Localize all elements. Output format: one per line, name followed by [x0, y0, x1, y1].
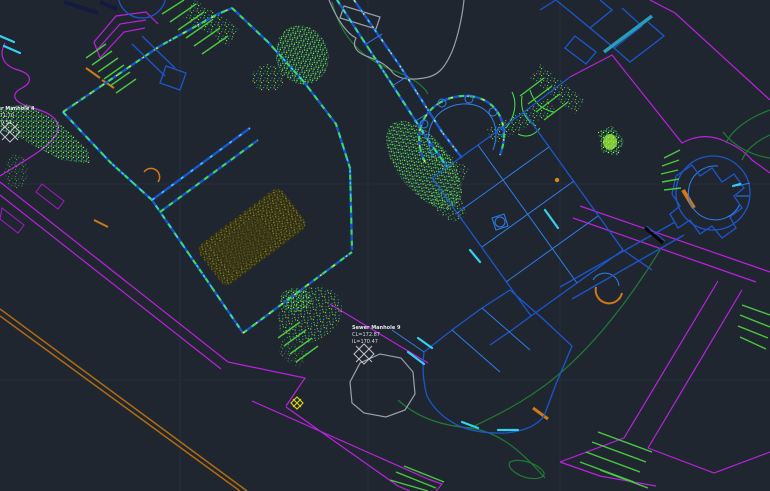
cad-drawing-viewport[interactable]: Sewer Manhole 9 CL=172.87 IL=170.47 Sewe… [0, 0, 770, 491]
manhole9-name: Sewer Manhole 9 [352, 325, 401, 331]
manhole4-cover-level: CL=171.70 [0, 113, 14, 119]
manhole4-invert-level: IL=170.51 [0, 120, 12, 126]
site-plan-canvas[interactable]: Sewer Manhole 9 CL=172.87 IL=170.47 Sewe… [0, 0, 770, 491]
manhole9-invert-level: IL=170.47 [352, 339, 378, 345]
manhole9-cover-level: CL=172.87 [352, 332, 380, 338]
manhole4-name: Sewer Manhole 4 [0, 106, 35, 112]
